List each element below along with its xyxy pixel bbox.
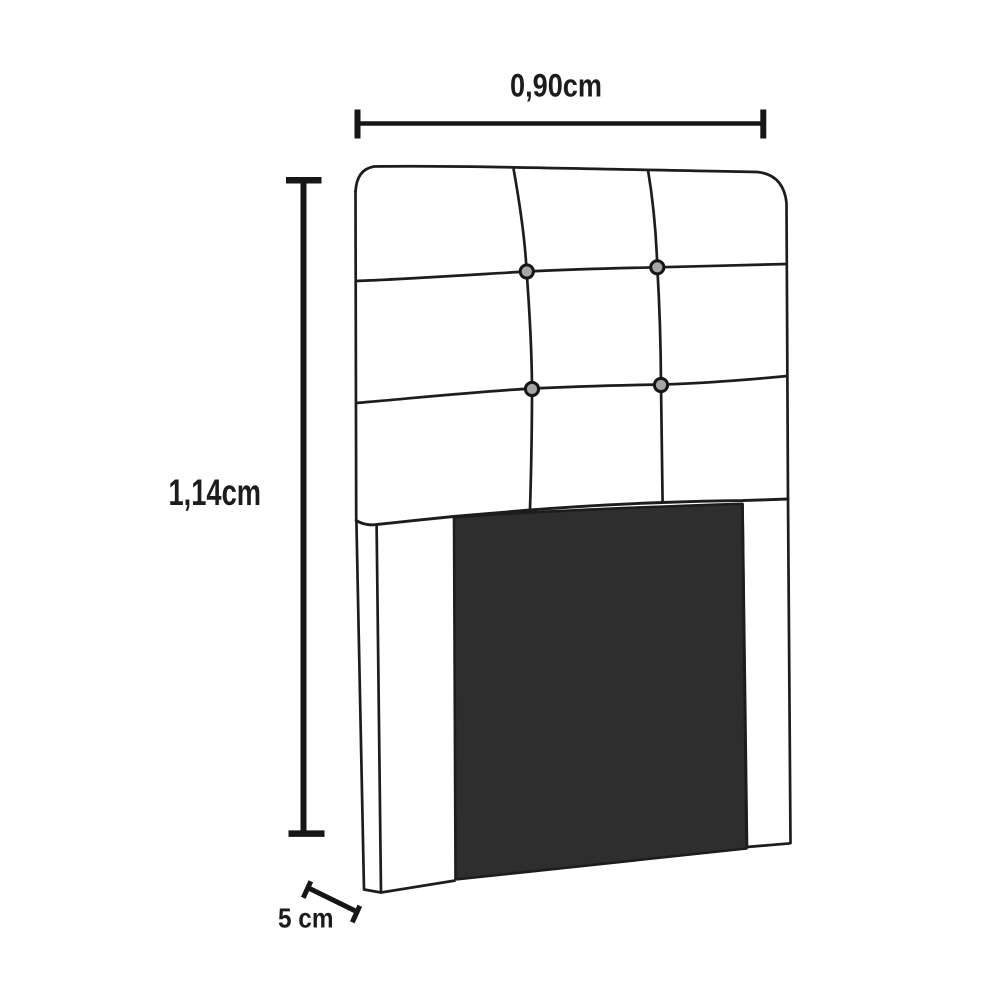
svg-text:1,14cm: 1,14cm (169, 472, 262, 513)
svg-text:0,90cm: 0,90cm (510, 68, 602, 104)
svg-text:5 cm: 5 cm (278, 903, 334, 934)
